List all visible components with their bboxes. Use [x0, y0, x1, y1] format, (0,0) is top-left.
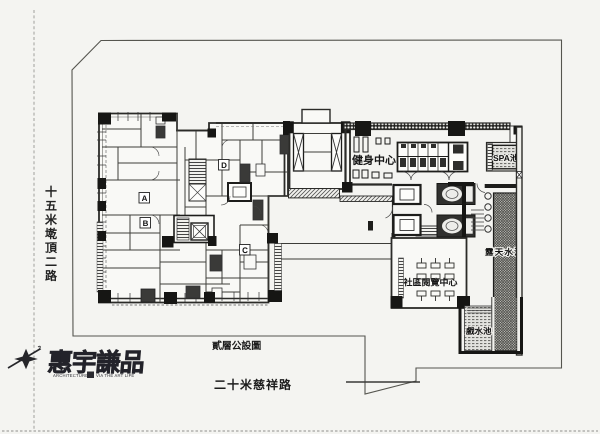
svg-text:B: B [143, 219, 149, 228]
svg-text:健身中心: 健身中心 [352, 154, 396, 167]
svg-text:二十米慈祥路: 二十米慈祥路 [214, 378, 292, 392]
svg-text:D: D [221, 161, 227, 170]
svg-text:SPA池: SPA池 [493, 153, 519, 163]
svg-text:貳層公設圖: 貳層公設圖 [212, 340, 261, 352]
svg-text:戲水池: 戲水池 [466, 326, 492, 336]
svg-text:VIA THE ART LIFE: VIA THE ART LIFE [96, 373, 134, 378]
svg-text:C: C [242, 246, 248, 255]
svg-text:A: A [142, 194, 148, 203]
svg-text:十五米墘頂二路: 十五米墘頂二路 [44, 185, 58, 283]
svg-text:ARCHITECTURE II: ARCHITECTURE II [53, 373, 92, 378]
